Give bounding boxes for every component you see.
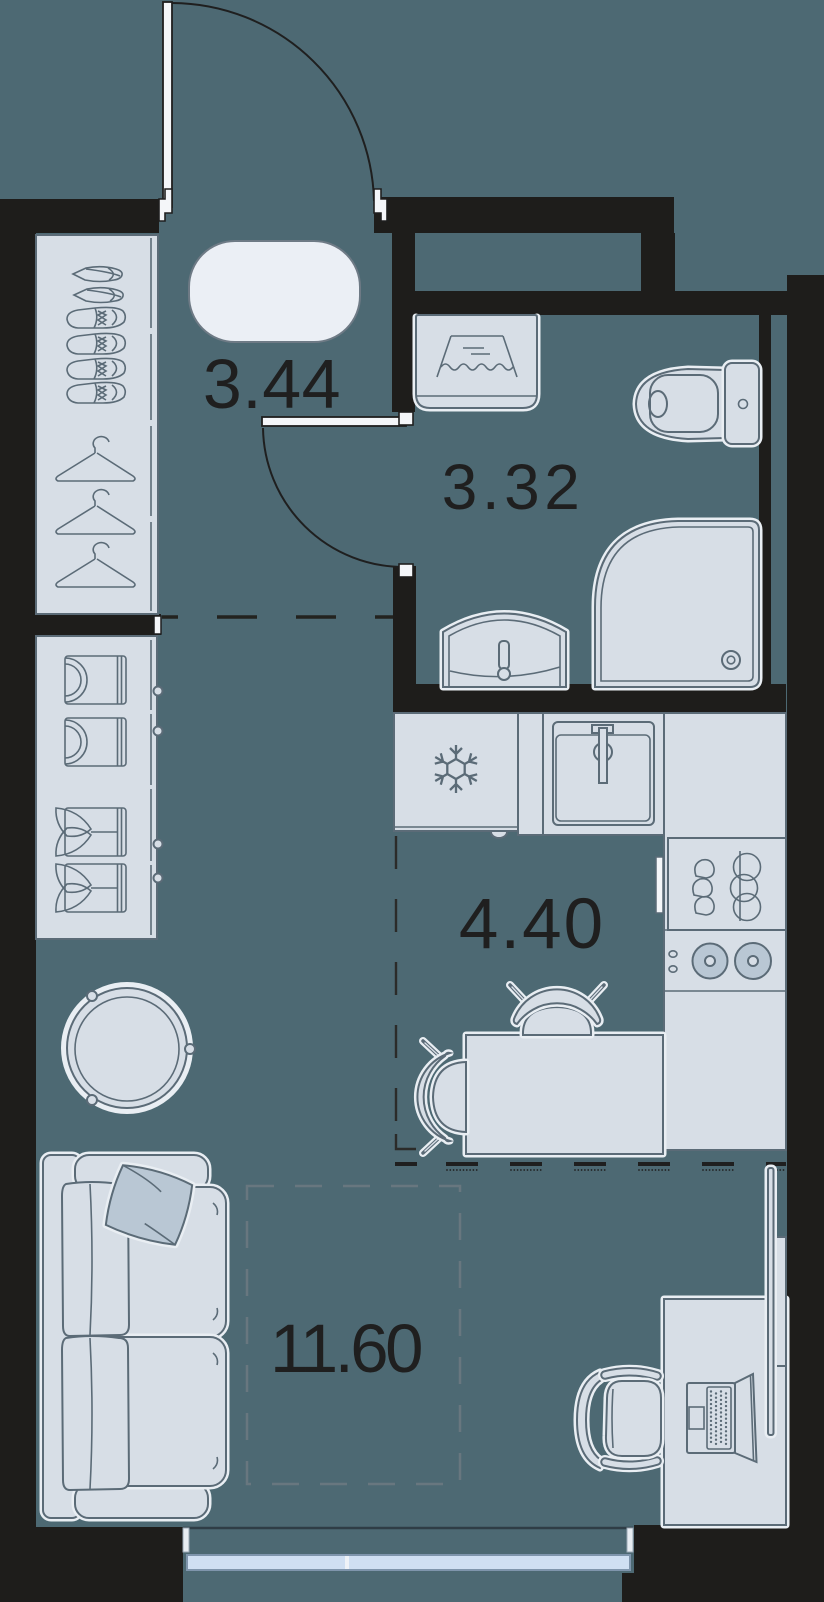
svg-text:11.60: 11.60 xyxy=(270,1310,421,1387)
svg-text:3.44: 3.44 xyxy=(203,345,341,423)
svg-text:4.40: 4.40 xyxy=(459,885,605,964)
svg-text:3.32: 3.32 xyxy=(442,451,585,523)
